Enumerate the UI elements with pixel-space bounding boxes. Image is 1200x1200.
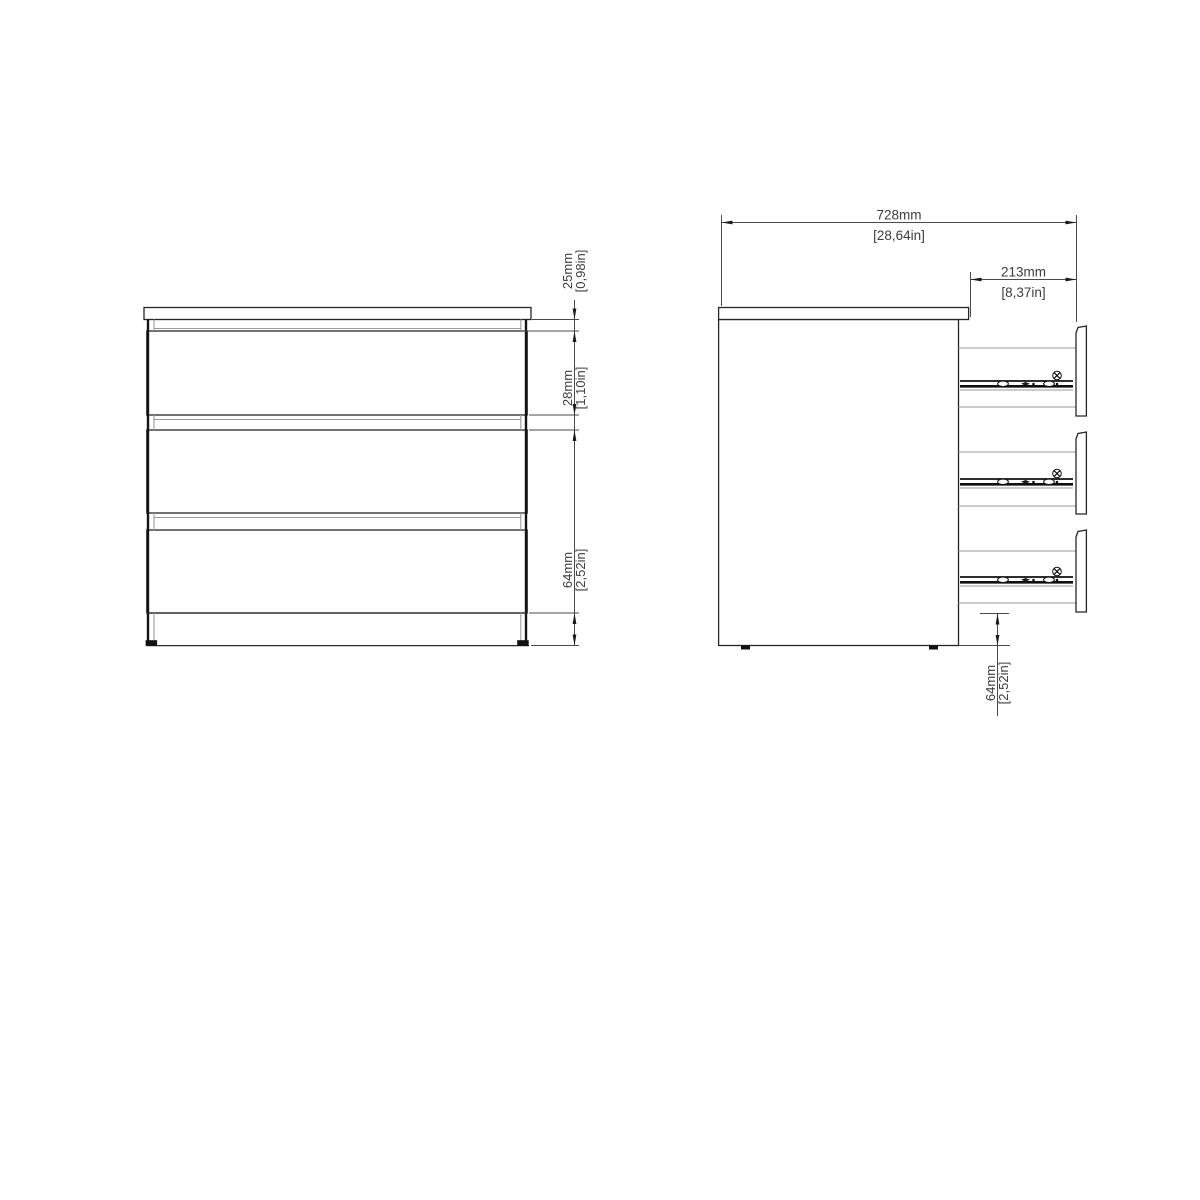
drawer-front-edge [1076, 530, 1086, 612]
drawer-front-edge [1076, 432, 1086, 514]
front-left-foot [146, 640, 158, 646]
drawer-slide-rail [960, 469, 1073, 488]
front-top-panel [144, 308, 531, 320]
dim-top-gap-imperial: [0,98in] [573, 250, 588, 293]
drawer-slide-rail [960, 567, 1073, 586]
technical-drawing: 25mm [0,98in] 28mm [1,10in] 64mm [2,52in… [0, 0, 1200, 1200]
roller-icon [998, 381, 1009, 386]
dim-drawer-gap-imperial: [1,10in] [573, 367, 588, 410]
side-back-foot [741, 646, 750, 650]
front-plinth [146, 613, 529, 646]
roller-icon [1044, 381, 1055, 386]
drawer-front-edge [1076, 326, 1086, 416]
side-top-panel [719, 308, 969, 320]
front-right-foot [517, 640, 529, 646]
drawer-slide-rail [960, 371, 1073, 390]
front-drawer-3 [147, 530, 527, 613]
dim-drawer-extension-metric: 213mm [1001, 265, 1046, 280]
side-view [719, 308, 1087, 650]
side-drawer-1 [959, 326, 1087, 416]
side-panel [719, 320, 959, 646]
roller-icon [998, 577, 1009, 582]
roller-icon [998, 479, 1009, 484]
chest-dimension-drawing: 25mm [0,98in] 28mm [1,10in] 64mm [2,52in… [0, 0, 1200, 1200]
dim-drawer-extension-imperial: [8,37in] [1001, 285, 1045, 300]
side-drawer-2 [959, 432, 1087, 514]
front-view [144, 308, 531, 646]
dim-side-base-imperial: [2,52in] [996, 662, 1011, 705]
roller-icon [1044, 479, 1055, 484]
dim-total-depth-imperial: [28,64in] [873, 228, 925, 243]
roller-icon [1044, 577, 1055, 582]
dim-total-depth-metric: 728mm [876, 208, 921, 223]
side-drawer-3 [959, 530, 1087, 612]
front-drawer-1 [147, 331, 527, 415]
front-drawer-2 [147, 430, 527, 513]
side-front-foot [929, 646, 938, 650]
dim-front-base-imperial: [2,52in] [573, 549, 588, 592]
